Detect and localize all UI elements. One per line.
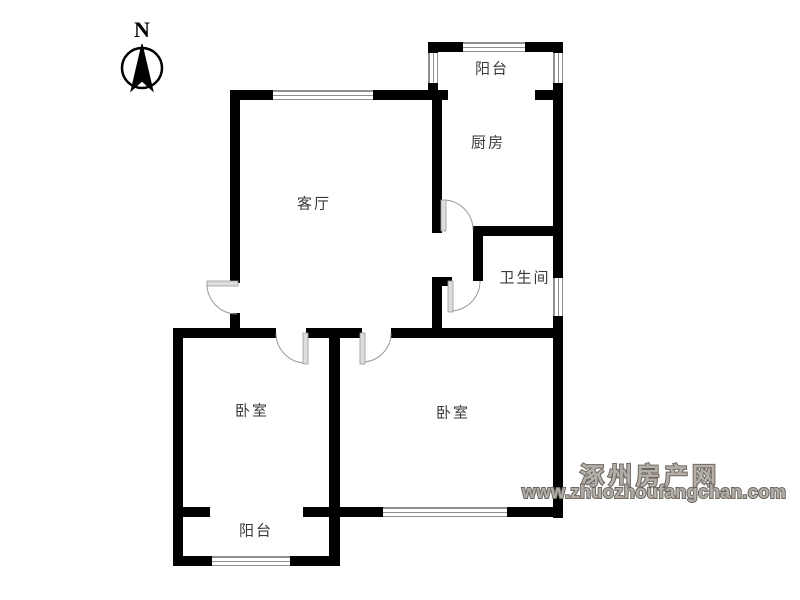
- north-compass: [0, 0, 800, 600]
- label-bedroom-left: 卧室: [235, 400, 269, 421]
- watermark-site-url: www.zhuozhoufangchan.com: [522, 482, 784, 503]
- floorplan-canvas: N 阳台 厨房 客厅 卫生间 卧室 卧室 阳台 涿州房产网 www.zhuozh…: [0, 0, 800, 600]
- label-living-room: 客厅: [297, 193, 331, 214]
- north-arrow-icon: [131, 44, 153, 91]
- label-balcony-bottom: 阳台: [239, 520, 273, 541]
- compass-north-label: N: [134, 17, 150, 43]
- label-balcony-top: 阳台: [475, 58, 509, 79]
- label-kitchen: 厨房: [471, 132, 505, 153]
- label-bedroom-right: 卧室: [436, 402, 470, 423]
- label-bathroom: 卫生间: [499, 267, 550, 288]
